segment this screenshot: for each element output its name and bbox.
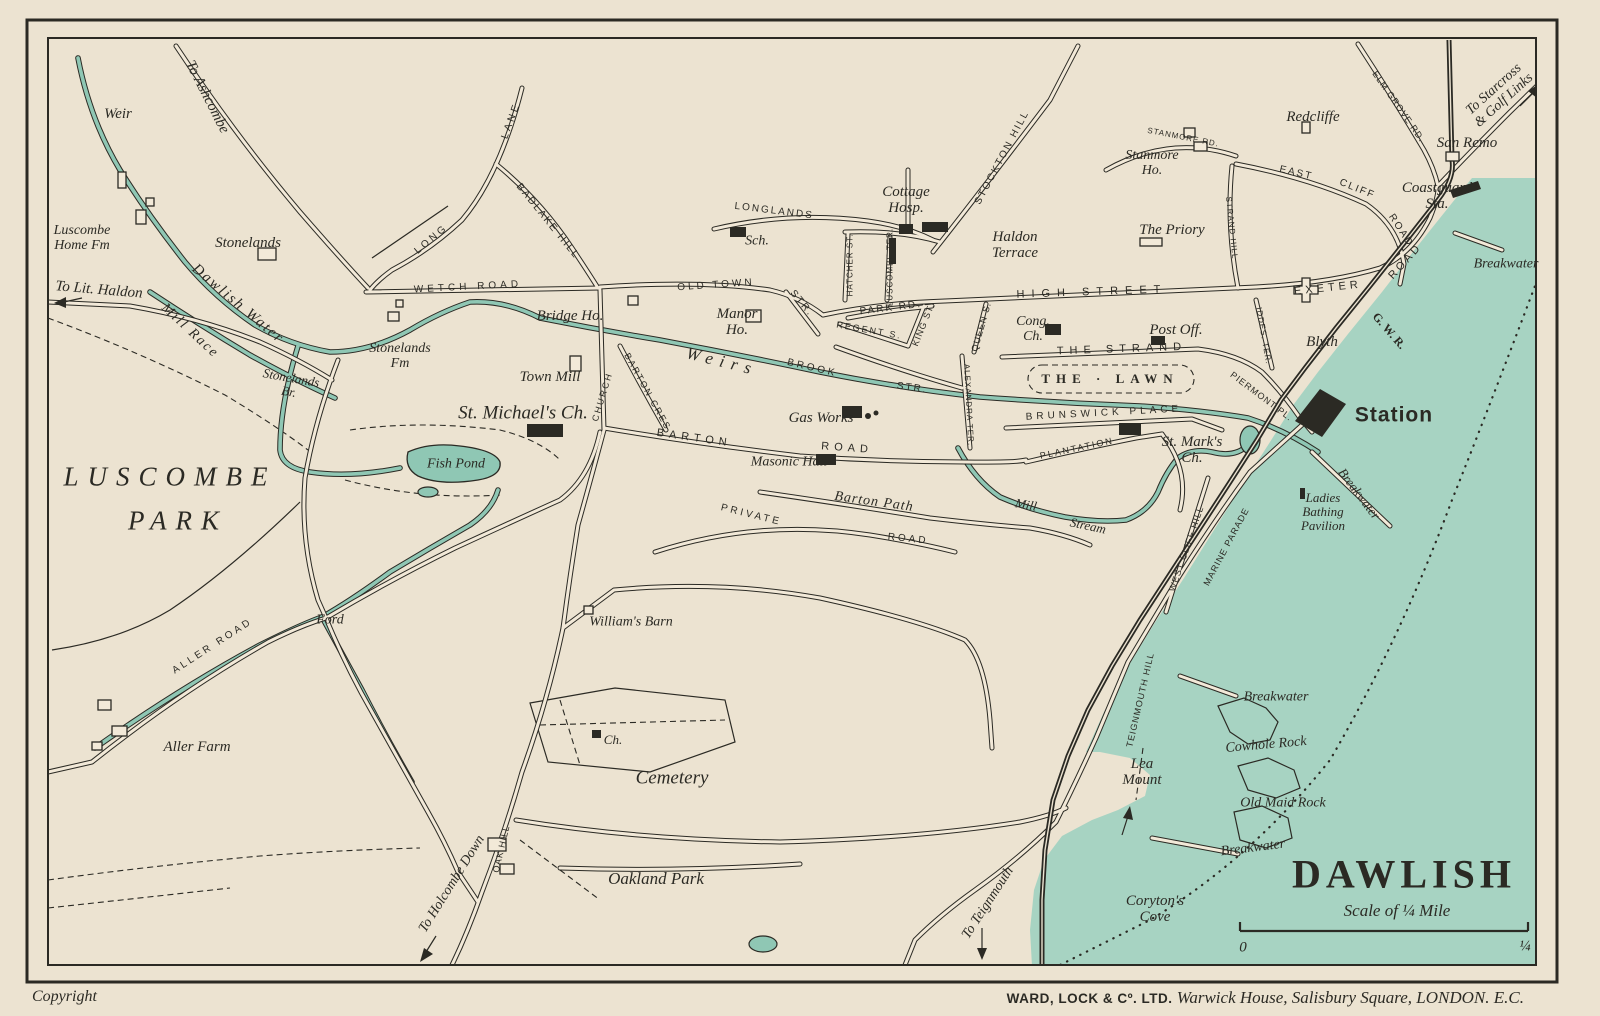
publisher-address: Warwick House, Salisbury Square, LONDON.…	[1177, 988, 1524, 1007]
label-hatcher-st: HATCHER ST.	[847, 234, 856, 297]
label-cemetery: Cemetery	[636, 769, 709, 790]
label-park: PARK	[128, 506, 228, 535]
label-blyth: Blyth	[1306, 334, 1338, 350]
label-stonelands: Stonelands	[215, 235, 281, 251]
label-william-s-barn: William's Barn	[589, 614, 673, 629]
label-san-remo: San Remo	[1437, 135, 1497, 151]
scale-start: 0	[1239, 940, 1247, 957]
label-breakwater: Breakwater	[1244, 689, 1309, 704]
label-station: Station	[1355, 405, 1433, 428]
label-cong-ch: Cong. Ch.	[1016, 314, 1050, 344]
label-the-priory: The Priory	[1139, 222, 1204, 238]
map-page: WeirTo AshcombeLuscombe Home FmTo Lit. H…	[0, 0, 1600, 1016]
publisher-imprint: WARD, LOCK & Cº. LTD. Warwick House, Sal…	[1007, 988, 1524, 1008]
label-ch: Ch.	[604, 733, 622, 747]
label-masonic-hall: Masonic Hall	[751, 454, 828, 469]
label-cottage-hosp: Cottage Hosp.	[882, 184, 930, 216]
label-aller-farm: Aller Farm	[163, 739, 230, 755]
label-the-lawn: THE · LAWN	[1041, 372, 1178, 386]
label-redcliffe: Redcliffe	[1286, 109, 1339, 125]
scale-end: ¼	[1519, 939, 1530, 956]
label-st-michael-s-ch: St. Michael's Ch.	[458, 404, 588, 425]
map-title: DAWLISH	[1292, 851, 1516, 898]
label-sch: Sch.	[745, 233, 769, 248]
label-lea-mount: Lea Mount	[1122, 756, 1161, 788]
label-manor-ho: Manor Ho.	[717, 306, 758, 338]
scale-label: Scale of ¼ Mile	[1344, 901, 1451, 921]
label-luscombe-ter: LUSCOMBE TER.	[887, 228, 896, 306]
label-ford: Ford	[316, 612, 343, 627]
label-old-maid-rock: Old Maid Rock	[1240, 795, 1326, 810]
label-coastguard-sta: Coastguard Sta.	[1402, 180, 1472, 212]
label-town-mill: Town Mill	[520, 369, 581, 385]
label-breakwater: Breakwater	[1474, 256, 1539, 271]
label-oakland-park: Oakland Park	[608, 870, 704, 888]
label-luscombe-home-fm: Luscombe Home Fm	[54, 223, 111, 253]
label-coryton-s-cove: Coryton's Cove	[1126, 893, 1184, 925]
label-weir: Weir	[104, 106, 132, 122]
oakland-pond	[749, 936, 777, 952]
small-pond	[418, 487, 438, 497]
label-gas-works: Gas Works	[789, 410, 854, 426]
label-luscombe: LUSCOMBE	[64, 462, 277, 491]
label-post-off: Post Off.	[1149, 322, 1202, 338]
label-ladies-bathing-pavilion: Ladies Bathing Pavilion	[1301, 491, 1345, 533]
label-fish-pond: Fish Pond	[427, 456, 485, 471]
publisher-name: WARD, LOCK & Cº. LTD.	[1007, 991, 1173, 1006]
label-stonelands-fm: Stonelands Fm	[369, 341, 430, 371]
label-stanmore-ho: Stanmore Ho.	[1125, 148, 1178, 178]
label-haldon-terrace: Haldon Terrace	[992, 229, 1038, 261]
copyright-note: Copyright	[32, 988, 97, 1006]
label-st-mark-s-ch: St. Mark's Ch.	[1162, 434, 1223, 466]
label-bridge-ho: Bridge Ho.	[537, 308, 604, 324]
